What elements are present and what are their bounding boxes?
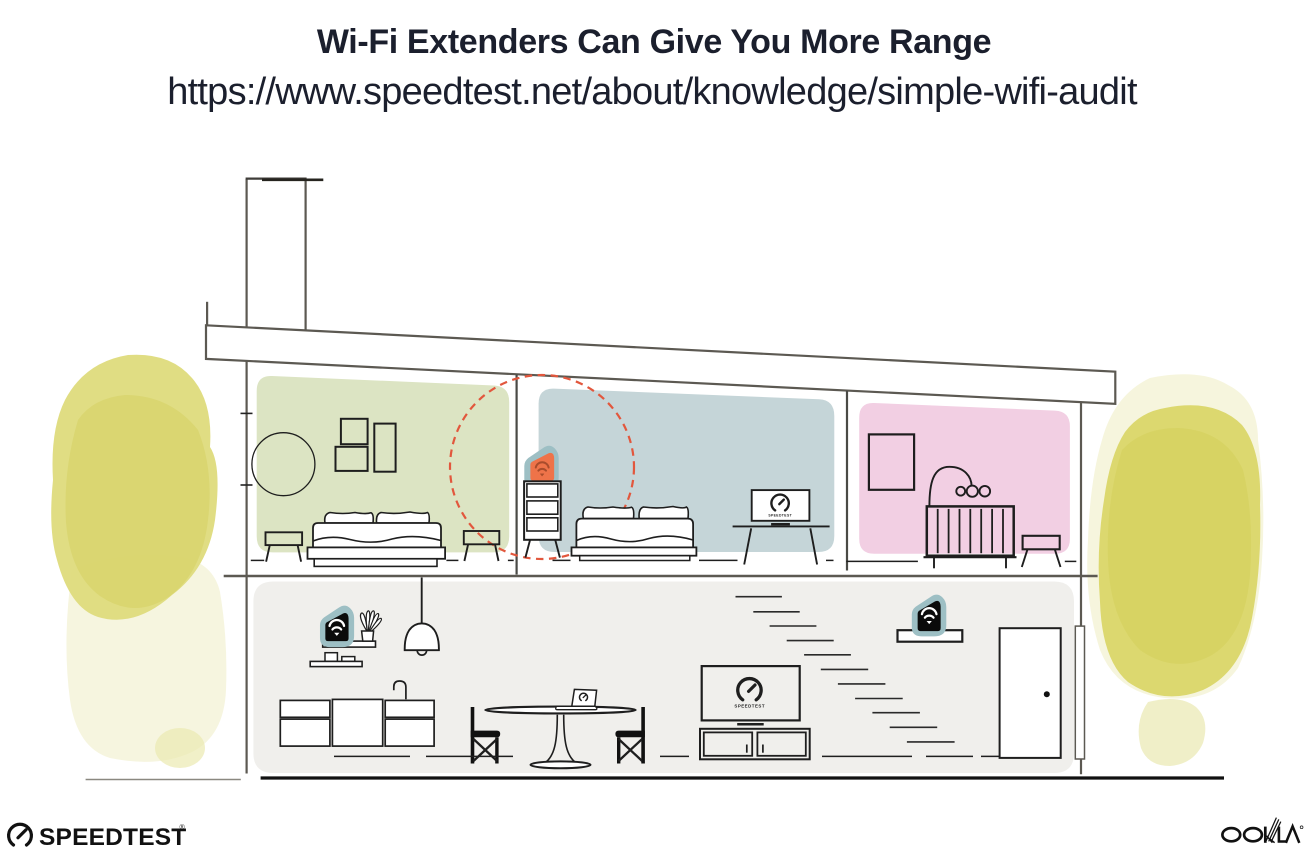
svg-text:Wi-Fi Extenders Can Give You M: Wi-Fi Extenders Can Give You More Range xyxy=(317,23,991,61)
svg-text:SPEEDTEST: SPEEDTEST xyxy=(768,513,792,517)
svg-text:SPEEDTEST: SPEEDTEST xyxy=(39,824,186,851)
svg-text:https://www.speedtest.net/abou: https://www.speedtest.net/about/knowledg… xyxy=(167,71,1138,113)
svg-text:®: ® xyxy=(180,824,186,832)
svg-text:SPEEDTEST: SPEEDTEST xyxy=(734,704,765,709)
